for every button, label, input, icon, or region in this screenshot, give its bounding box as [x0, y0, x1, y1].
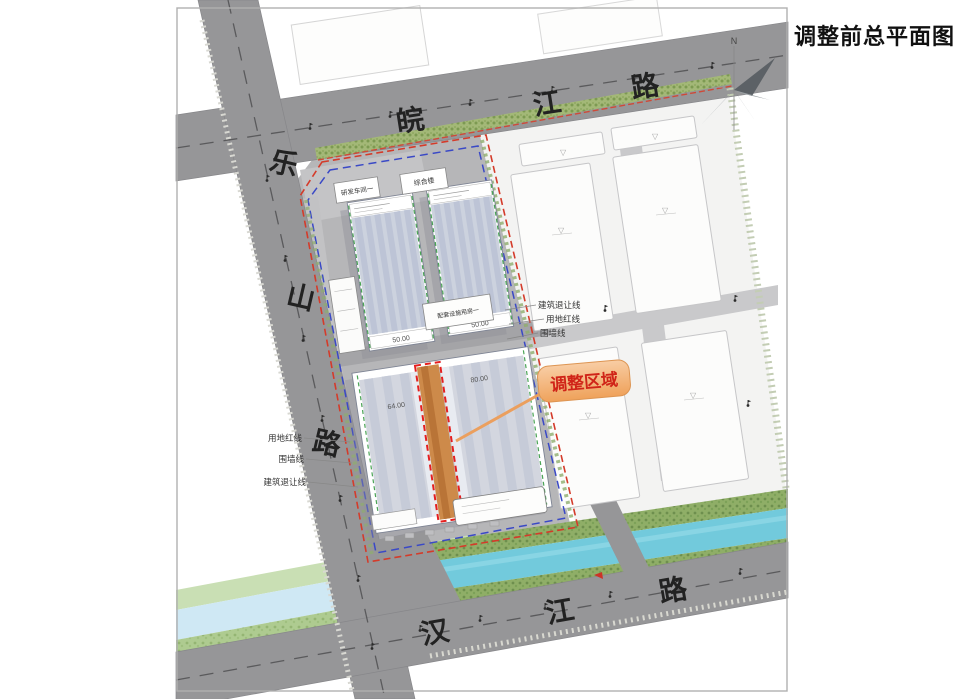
svg-text:▽: ▽: [560, 148, 567, 157]
label-yongdi-hongxian-right: 用地红线: [546, 314, 581, 324]
site-plan-drawing: ▽▽ ▽▽ ▽▽ 50.00: [0, 0, 980, 699]
site-plan-page: ▽▽ ▽▽ ▽▽ 50.00: [0, 0, 980, 699]
svg-text:▽: ▽: [652, 132, 659, 141]
svg-text:江: 江: [544, 594, 577, 629]
compass-north-label: N: [731, 36, 738, 46]
page-title: 调整前总平面图: [794, 24, 955, 49]
label-weiqiangxian-right: 围墙线: [540, 328, 566, 338]
svg-text:皖: 皖: [394, 103, 427, 138]
label-jianzhu-tuirangxian-right: 建筑退让线: [538, 300, 581, 310]
label-yongdi-hongxian-left: 用地红线: [268, 433, 303, 443]
label-jianzhu-tuirangxian-left: 建筑退让线: [263, 477, 306, 487]
label-weiqiangxian-left: 围墙线: [278, 454, 304, 464]
svg-text:路: 路: [629, 69, 662, 104]
svg-text:江: 江: [531, 86, 564, 121]
